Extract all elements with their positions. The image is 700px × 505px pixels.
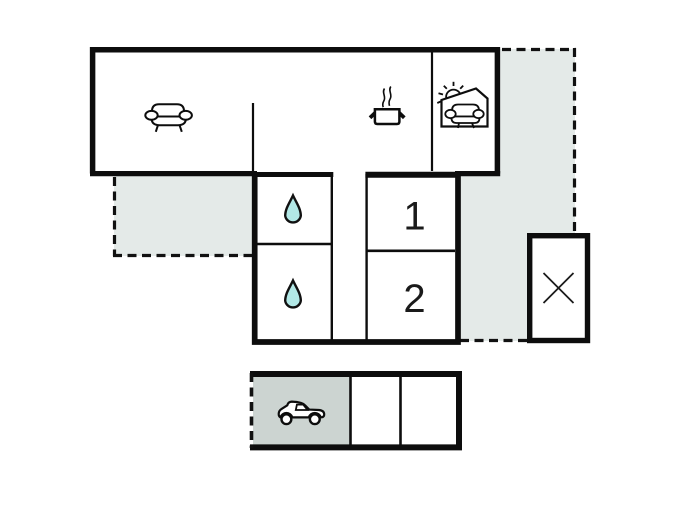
svg-text:1: 1 [403, 195, 425, 239]
svg-text:2: 2 [403, 277, 425, 321]
